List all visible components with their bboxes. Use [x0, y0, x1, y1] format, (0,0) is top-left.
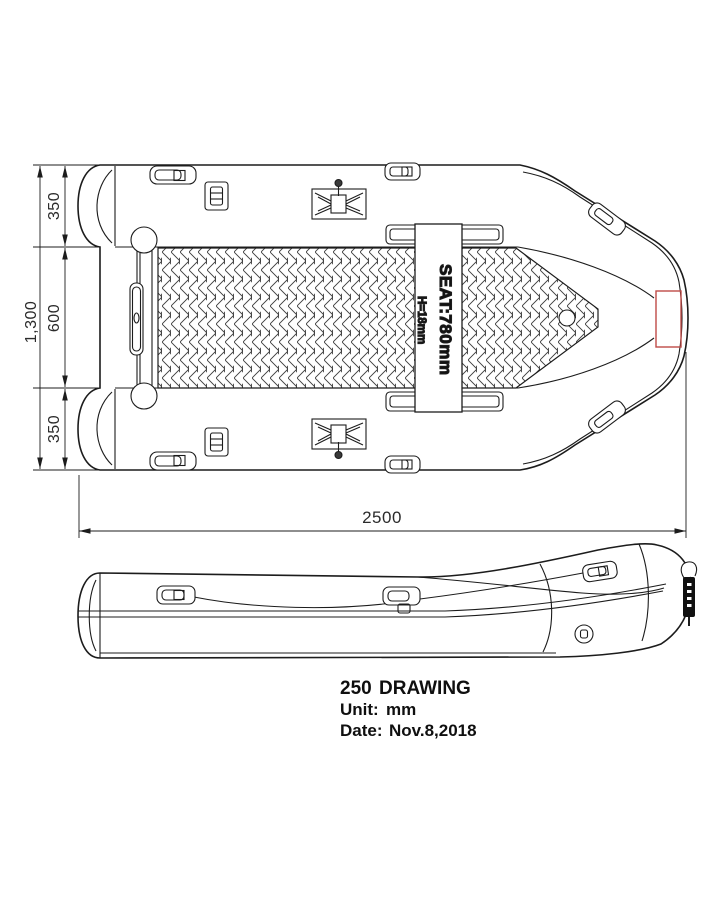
- date-value: Nov.8,2018: [389, 721, 477, 740]
- dim-tube-bottom: 350: [46, 415, 63, 443]
- oarlock-knob-bottom: [131, 383, 157, 409]
- floor-panel: [158, 248, 598, 388]
- handle-top-middle: [385, 163, 420, 180]
- rope-ball-bottom: [335, 452, 342, 459]
- rope-ball-top: [335, 180, 342, 187]
- top-view: SEAT:780mm H=18mm: [78, 163, 688, 473]
- valve-side: [575, 625, 593, 643]
- handle-bottom-middle: [385, 456, 420, 473]
- dim-floor-width: 600: [46, 304, 63, 332]
- unit-label: Unit:: [340, 700, 379, 719]
- handle-side-left: [157, 586, 195, 604]
- side-view: [78, 544, 697, 658]
- seat-label: SEAT:780mm: [436, 264, 455, 375]
- dim-overall-length: 2500: [362, 508, 402, 527]
- valve-bottom: [205, 428, 228, 456]
- oarlock-knob-top: [131, 227, 157, 253]
- handle-bottom-left: [150, 452, 196, 470]
- dim-overall-beam: 1,300: [23, 301, 40, 344]
- drawing-number: 250: [340, 678, 372, 699]
- seat-height-label: H=18mm: [415, 296, 427, 344]
- drawing-canvas: SEAT:780mm H=18mm: [0, 0, 720, 898]
- boat-technical-drawing: SEAT:780mm H=18mm: [0, 0, 720, 898]
- unit-value: mm: [386, 700, 416, 719]
- handle-top-left: [150, 166, 196, 184]
- dim-tube-top: 350: [46, 192, 63, 220]
- drawing-title: DRAWING: [379, 678, 471, 699]
- title-block: 250 DRAWING Unit: mm Date: Nov.8,2018: [340, 678, 477, 740]
- valve-top: [205, 182, 228, 210]
- floor-drain: [559, 310, 575, 326]
- date-label: Date:: [340, 721, 383, 740]
